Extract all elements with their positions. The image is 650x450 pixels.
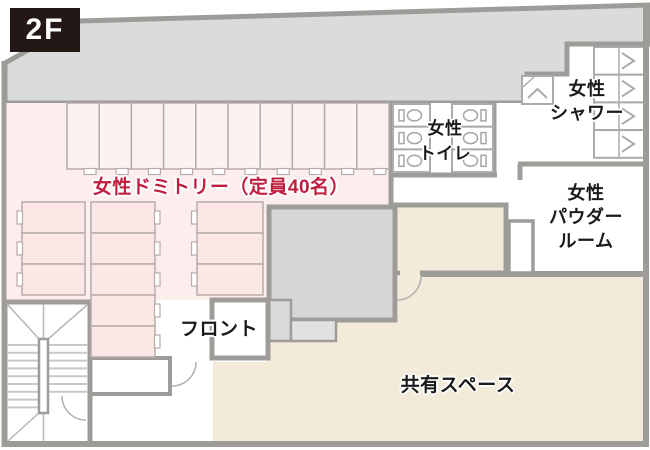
bed-pillow bbox=[192, 242, 198, 255]
front-desk-label: フロント bbox=[155, 318, 283, 342]
bed bbox=[91, 295, 155, 326]
powder-label-line1: 女性 bbox=[534, 181, 638, 205]
bed-pillow bbox=[213, 169, 225, 175]
bed bbox=[197, 233, 263, 264]
bed-pillow bbox=[116, 169, 128, 175]
bed bbox=[91, 326, 155, 357]
bed bbox=[197, 264, 263, 295]
bed-pillow bbox=[155, 273, 161, 286]
door-gap bbox=[400, 270, 420, 278]
bed-pillow bbox=[277, 169, 289, 175]
bed bbox=[131, 103, 163, 169]
staircase bbox=[5, 302, 90, 444]
bed bbox=[325, 103, 357, 169]
bed bbox=[67, 103, 99, 169]
powder-room-label: 女性 パウダー ルーム bbox=[534, 181, 638, 253]
bed-pillow bbox=[17, 211, 23, 224]
bed bbox=[99, 103, 131, 169]
bed bbox=[91, 264, 155, 295]
bed-pillow bbox=[155, 304, 161, 317]
bed-pillow bbox=[155, 242, 161, 255]
bed bbox=[357, 103, 389, 169]
bed bbox=[22, 233, 85, 264]
bed bbox=[22, 202, 85, 233]
shower-label: 女性 シャワー bbox=[544, 77, 630, 125]
toilet-label-line1: 女性 bbox=[403, 116, 487, 141]
bed-pillow bbox=[342, 169, 354, 175]
floor-plan: 2F 女性ドミトリー（定員40名） フロント 共有スペース 女性 トイレ 女性 … bbox=[0, 0, 650, 450]
stair-rail bbox=[39, 339, 48, 413]
toilet-label-line2: トイレ bbox=[403, 141, 487, 166]
toilet-label: 女性 トイレ bbox=[403, 116, 487, 166]
bed bbox=[91, 202, 155, 233]
step-block bbox=[291, 320, 336, 341]
powder-label-line2: パウダー bbox=[534, 205, 638, 229]
shared-space-label: 共有スペース bbox=[398, 374, 518, 398]
bed-pillow bbox=[192, 273, 198, 286]
bed-pillow bbox=[17, 242, 23, 255]
powder-room-counter bbox=[509, 221, 533, 273]
bed-pillow bbox=[309, 169, 321, 175]
bed-pillow bbox=[148, 169, 160, 175]
bed-block-left bbox=[17, 202, 85, 295]
bed bbox=[22, 264, 85, 295]
bed-pillow bbox=[155, 211, 161, 224]
bed-row-top bbox=[67, 103, 389, 175]
bed bbox=[196, 103, 228, 169]
bed-pillow bbox=[181, 169, 193, 175]
powder-label-line3: ルーム bbox=[534, 229, 638, 253]
bed-pillow bbox=[192, 211, 198, 224]
bed bbox=[228, 103, 260, 169]
bed bbox=[260, 103, 292, 169]
shared-space-upper-room bbox=[395, 205, 506, 273]
dormitory-label: 女性ドミトリー（定員40名） bbox=[85, 176, 357, 200]
floor-badge: 2F bbox=[10, 8, 80, 52]
bed bbox=[292, 103, 324, 169]
bed-block-right bbox=[192, 202, 264, 295]
bed bbox=[91, 233, 155, 264]
bed-pillow bbox=[17, 273, 23, 286]
bed bbox=[164, 103, 196, 169]
bed-pillow bbox=[84, 169, 96, 175]
bed-block-middle bbox=[91, 202, 160, 357]
bed-pillow bbox=[245, 169, 257, 175]
utility-room bbox=[86, 358, 170, 394]
bed-pillow bbox=[374, 169, 386, 175]
shower-label-line1: 女性 bbox=[544, 77, 630, 101]
bed bbox=[197, 202, 263, 233]
shower-label-line2: シャワー bbox=[544, 101, 630, 125]
